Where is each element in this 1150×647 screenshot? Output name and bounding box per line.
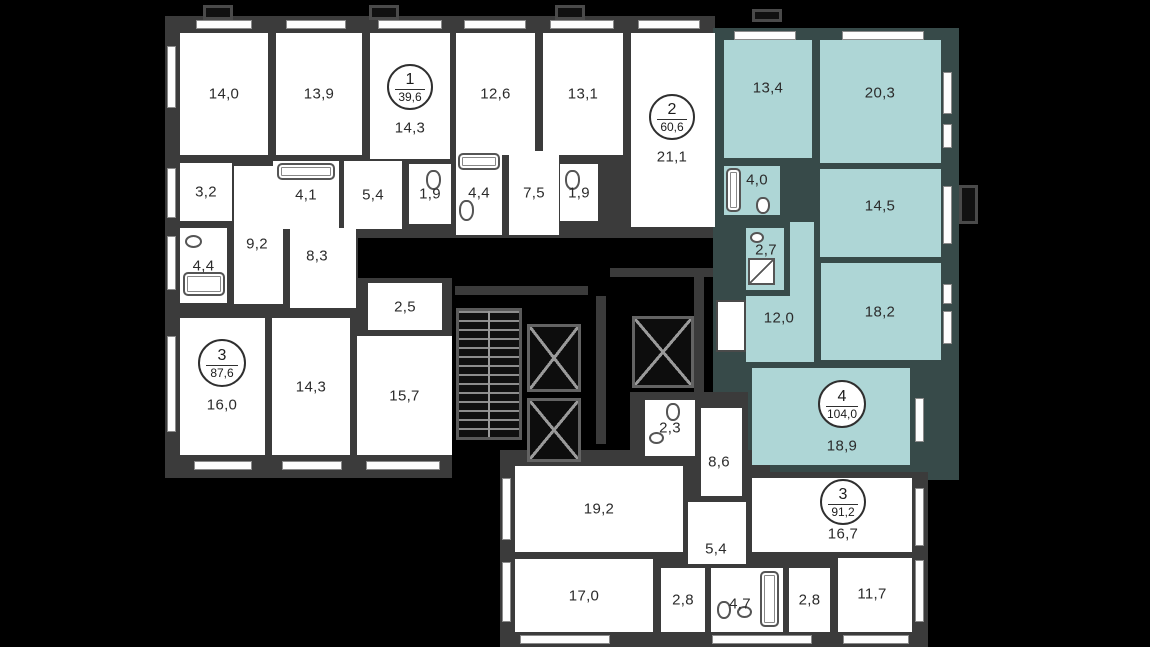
room-area-label: 1,9 — [419, 186, 441, 203]
elevator-icon — [632, 316, 694, 388]
room-area-label: 4,1 — [295, 187, 317, 204]
bathtub-icon — [277, 163, 335, 180]
window — [286, 20, 346, 29]
apartment-total-area: 104,0 — [827, 408, 857, 421]
toilet-icon — [756, 197, 770, 214]
apartment-badge[interactable]: 1 39,6 — [387, 64, 433, 110]
apartment-total-area: 39,6 — [398, 91, 421, 104]
window — [943, 284, 952, 304]
room — [820, 40, 941, 163]
room-area-label: 8,6 — [708, 454, 730, 471]
bathtub-icon — [183, 272, 225, 296]
room-area-label: 1,9 — [568, 184, 590, 201]
balcony-ledge — [369, 5, 399, 20]
window — [502, 562, 511, 622]
window — [842, 31, 924, 40]
toilet-icon — [666, 403, 680, 421]
apartment-number: 4 — [838, 388, 847, 405]
room-area-label: 2,3 — [659, 420, 681, 437]
room-area-label: 4,0 — [746, 172, 768, 189]
room-area-label: 18,9 — [827, 438, 857, 455]
room-area-label: 4,4 — [468, 185, 490, 202]
room-area-label: 12,6 — [480, 86, 510, 103]
window — [167, 236, 176, 290]
room-area-label: 19,2 — [584, 501, 614, 518]
window — [196, 20, 252, 29]
corridor-vestibule — [358, 238, 452, 278]
apartment-number: 2 — [668, 101, 677, 118]
room-area-label: 14,0 — [209, 86, 239, 103]
apartment-total-area: 91,2 — [831, 506, 854, 519]
core-wall — [455, 286, 588, 295]
room-area-label: 7,5 — [523, 185, 545, 202]
window — [167, 46, 176, 108]
window — [167, 336, 176, 432]
core-wall — [694, 268, 704, 392]
window — [915, 560, 924, 622]
balcony-ledge — [203, 5, 233, 20]
room — [724, 40, 812, 158]
window — [943, 124, 952, 148]
room-area-label: 2,8 — [799, 592, 821, 609]
window — [915, 398, 924, 442]
room-area-label: 18,2 — [865, 304, 895, 321]
apartment-number: 1 — [406, 71, 415, 88]
room — [701, 408, 742, 496]
room-area-label: 17,0 — [569, 587, 599, 604]
window — [943, 186, 952, 244]
room-area-label: 14,5 — [865, 198, 895, 215]
apartment-badge[interactable]: 3 91,2 — [820, 479, 866, 525]
window — [167, 168, 176, 218]
room-area-label: 14,3 — [395, 120, 425, 137]
window — [915, 488, 924, 546]
floor-plan: 1 39,6 2 60,6 3 87,6 4 104,0 3 91,2 14,0… — [0, 0, 1150, 647]
window — [194, 461, 252, 470]
window — [943, 72, 952, 114]
room-area-label: 5,4 — [362, 187, 384, 204]
elevator-icon — [527, 324, 581, 392]
window — [638, 20, 700, 29]
room-area-label: 9,2 — [246, 236, 268, 253]
apartment-badge[interactable]: 2 60,6 — [649, 94, 695, 140]
room-area-label: 20,3 — [865, 85, 895, 102]
room-area-label: 2,5 — [394, 298, 416, 315]
room-area-label: 2,8 — [672, 592, 694, 609]
window — [282, 461, 342, 470]
apartment-total-area: 60,6 — [660, 121, 683, 134]
window — [464, 20, 526, 29]
balcony-ledge — [959, 185, 978, 224]
room-area-label: 3,2 — [195, 184, 217, 201]
window — [734, 31, 796, 40]
apartment-total-area: 87,6 — [210, 367, 233, 380]
room-area-label: 5,4 — [705, 541, 727, 558]
room-area-label: 4,4 — [193, 257, 215, 274]
apartment-number: 3 — [218, 347, 227, 364]
core-wall — [596, 296, 606, 444]
apartment-badge[interactable]: 3 87,6 — [198, 339, 246, 387]
apartment-number: 3 — [839, 486, 848, 503]
elevator-icon — [527, 398, 581, 462]
window — [843, 635, 909, 644]
room-area-label: 12,0 — [764, 310, 794, 327]
room-area-label: 13,4 — [753, 80, 783, 97]
room-area-label: 13,1 — [568, 86, 598, 103]
stairs-icon — [456, 308, 522, 440]
window — [943, 311, 952, 344]
window — [520, 635, 610, 644]
apartment-badge-highlighted[interactable]: 4 104,0 — [818, 380, 866, 428]
shower-icon — [748, 258, 775, 285]
bathtub-icon — [458, 153, 500, 170]
room-area-label: 4,7 — [729, 596, 751, 613]
room-area-label: 16,7 — [828, 526, 858, 543]
bathtub-icon — [760, 571, 779, 627]
room-area-label: 15,7 — [389, 387, 419, 404]
window — [550, 20, 614, 29]
sink-icon — [185, 235, 202, 248]
window — [378, 20, 442, 29]
room-area-label: 8,3 — [306, 248, 328, 265]
room-area-label: 2,7 — [755, 242, 777, 259]
room-area-label: 13,9 — [304, 86, 334, 103]
window — [502, 478, 511, 540]
balcony-ledge — [555, 5, 585, 20]
window — [366, 461, 440, 470]
room-area-label: 21,1 — [657, 149, 687, 166]
window — [712, 635, 812, 644]
room — [290, 228, 356, 308]
room-area-label: 11,7 — [857, 586, 886, 603]
apartment-entrance-door — [716, 300, 746, 352]
bathtub-icon — [726, 168, 741, 212]
toilet-icon — [459, 200, 474, 221]
balcony-ledge — [752, 9, 782, 22]
room-area-label: 14,3 — [296, 378, 326, 395]
room-area-label: 16,0 — [207, 397, 237, 414]
